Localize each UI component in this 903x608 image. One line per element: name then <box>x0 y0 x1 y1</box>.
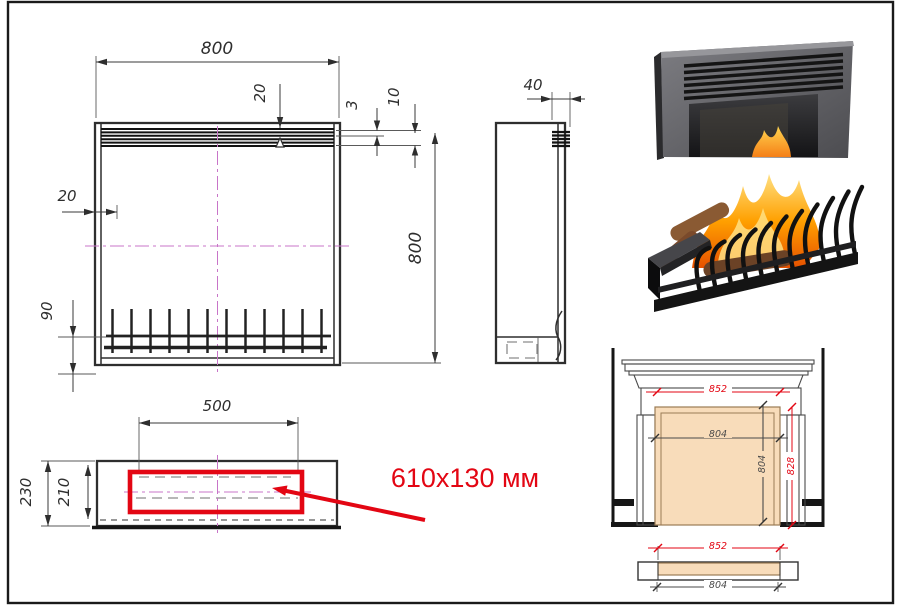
opening-height-label: 804 <box>757 455 768 473</box>
opening-width-label: 804 <box>709 429 727 440</box>
grate-height-label: 90 <box>38 301 56 320</box>
side-inset-label: 20 <box>57 187 76 205</box>
portal-plan-view: 852 804 <box>638 541 798 592</box>
grille-inset-label: 20 <box>251 83 269 102</box>
plan-outer-width-label: 852 <box>709 541 727 552</box>
side-depth-label: 40 <box>523 76 542 94</box>
drawing-sheet: 800 20 3 10 <box>0 0 903 608</box>
grate-hook-profile <box>556 311 562 360</box>
burner-grate-render <box>648 174 862 312</box>
portal-installation-diagram: 852 804 804 828 <box>611 348 823 592</box>
plan-inner-width-label: 804 <box>709 580 727 591</box>
dim-plan-inner-width: 804 <box>650 580 786 592</box>
grille-band-label: 10 <box>385 87 403 106</box>
slot-gap-label: 3 <box>343 100 361 110</box>
dim-side-inset: 20 <box>57 187 117 219</box>
side-grille-slats <box>552 132 570 146</box>
dim-slot-gap: 3 <box>336 100 421 156</box>
hidden-burner-outline <box>507 342 537 358</box>
front-view: 800 20 3 10 <box>38 39 441 392</box>
dim-side-depth: 40 <box>523 76 585 127</box>
drawing-canvas: 800 20 3 10 <box>0 0 903 608</box>
front-width-label: 800 <box>201 39 233 59</box>
fireplace-insert-render <box>654 41 854 160</box>
callout-arrow-line <box>284 491 425 521</box>
dim-front-width: 800 <box>96 39 339 118</box>
dim-portal-outer-width: 852 <box>646 384 790 396</box>
niche-height-label: 828 <box>786 457 797 475</box>
dim-niche-height: 828 <box>786 403 797 529</box>
burner-width-label: 500 <box>203 397 232 415</box>
dim-plan-outer-width: 852 <box>648 541 788 552</box>
dim-front-height: 800 <box>342 133 441 363</box>
burner-size-label: 610x130 мм <box>391 463 539 493</box>
front-height-label: 800 <box>406 232 426 264</box>
dim-grille-inset: 20 <box>251 83 284 147</box>
dim-grille-band: 10 <box>385 87 418 168</box>
size-callout: 610x130 мм <box>130 463 539 520</box>
callout-arrow-head <box>272 486 288 496</box>
portal-outer-width-label: 852 <box>709 384 727 395</box>
side-view: 40 <box>496 76 585 363</box>
depth-label: 230 <box>17 478 35 507</box>
inner-depth-label: 210 <box>55 478 73 507</box>
dim-burner-width: 500 <box>139 397 298 470</box>
dim-inner-depth-210: 210 <box>55 465 91 519</box>
